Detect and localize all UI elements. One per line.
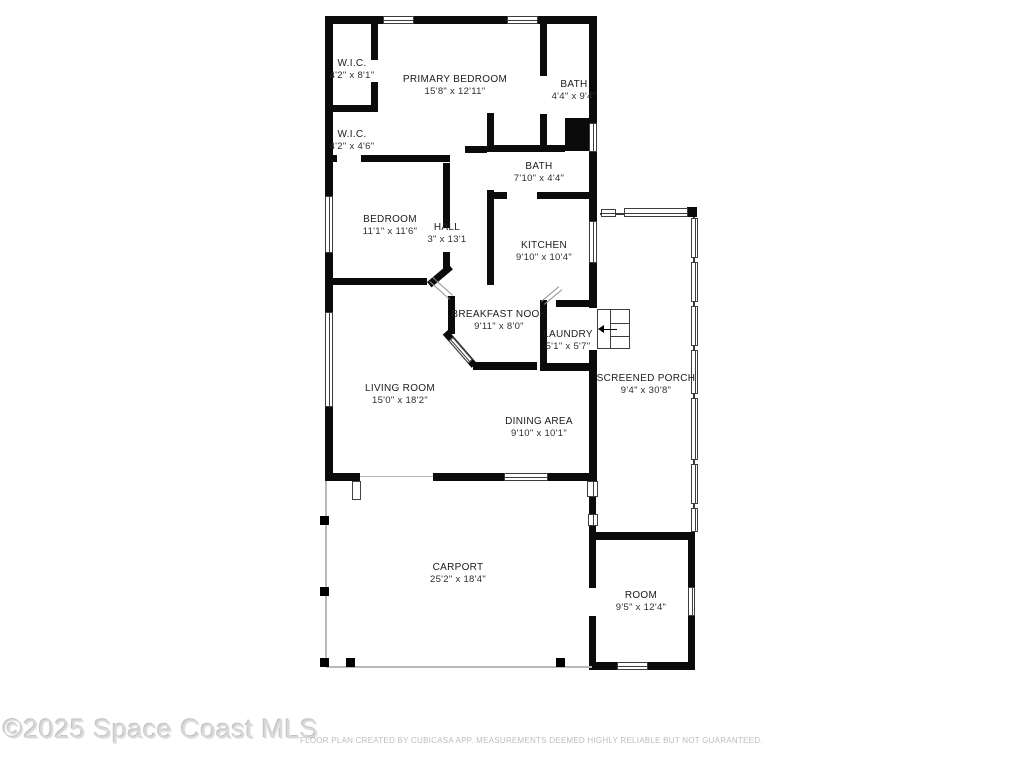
wall bbox=[371, 16, 378, 60]
wall bbox=[433, 473, 509, 481]
room-label-breakfast-nook: BREAKFAST NOOK 9'11" x 8'0" bbox=[451, 309, 546, 333]
steps-tread bbox=[610, 323, 629, 324]
wall bbox=[325, 473, 360, 481]
carport-post bbox=[556, 658, 565, 667]
room-label-dining-area: DINING AREA 9'10" x 10'1" bbox=[505, 416, 573, 440]
stairs-arrow-left-icon bbox=[598, 325, 604, 333]
wall bbox=[556, 300, 590, 307]
room-dims: 4'4" x 9'4" bbox=[552, 91, 597, 103]
steps-symbol bbox=[597, 309, 630, 349]
room-label-kitchen: KITCHEN 9'10" x 10'4" bbox=[516, 240, 572, 264]
room-dims: 25'2" x 18'4" bbox=[430, 574, 486, 586]
wall bbox=[540, 16, 547, 76]
window-symbol-bay bbox=[448, 337, 472, 364]
wall bbox=[465, 146, 487, 153]
room-name: PRIMARY BEDROOM bbox=[403, 74, 507, 86]
stairs-arrow-line bbox=[603, 329, 617, 330]
screen-window-symbol bbox=[691, 262, 698, 302]
room-name: BREAKFAST NOOK bbox=[451, 309, 546, 321]
room-dims: 9'10" x 10'1" bbox=[505, 428, 573, 440]
carport-boundary bbox=[326, 666, 592, 668]
room-dims: 9'5" x 12'4" bbox=[616, 602, 666, 614]
wall bbox=[325, 16, 597, 24]
room-dims: 4'2" x 8'1" bbox=[330, 70, 375, 82]
room-name: LAUNDRY bbox=[543, 329, 593, 341]
wall bbox=[473, 362, 537, 370]
steps-tread bbox=[610, 336, 629, 337]
window-symbol bbox=[589, 221, 597, 263]
room-dims: 4'2" x 4'6" bbox=[330, 141, 375, 153]
room-dims: 15'0" x 18'2" bbox=[365, 395, 435, 407]
wall bbox=[487, 190, 494, 285]
room-label-hall: HALL 3" x 13'1 bbox=[427, 222, 466, 246]
wall bbox=[325, 278, 427, 285]
wall bbox=[589, 532, 695, 540]
window-symbol bbox=[688, 587, 695, 616]
window-symbol bbox=[587, 481, 598, 497]
wall bbox=[537, 192, 590, 199]
window-symbol bbox=[601, 209, 616, 217]
screen-window-symbol bbox=[691, 508, 698, 532]
room-label-wic1: W.I.C. 4'2" x 8'1" bbox=[330, 58, 375, 82]
room-dims: 9'11" x 8'0" bbox=[451, 321, 546, 333]
wall bbox=[361, 155, 450, 162]
wall bbox=[589, 532, 596, 588]
room-dims: 11'1" x 11'6" bbox=[363, 226, 418, 238]
room-dims: 15'8" x 12'11" bbox=[403, 86, 507, 98]
room-name: CARPORT bbox=[430, 562, 486, 574]
room-name: W.I.C. bbox=[330, 129, 375, 141]
room-name: BATH bbox=[514, 161, 564, 173]
wall bbox=[325, 155, 337, 162]
room-label-bath1: BATH 4'4" x 9'4" bbox=[552, 79, 597, 103]
carport-post bbox=[320, 658, 329, 667]
window-symbol bbox=[588, 514, 598, 526]
screen-window-symbol bbox=[691, 218, 698, 258]
carport-post bbox=[320, 587, 329, 596]
window-symbol bbox=[383, 16, 414, 24]
room-name: DINING AREA bbox=[505, 416, 573, 428]
door-leaf bbox=[352, 481, 361, 500]
mls-watermark: ©2025 Space Coast MLS bbox=[3, 714, 319, 745]
room-label-wic2: W.I.C. 4'2" x 4'6" bbox=[330, 129, 375, 153]
room-label-bedroom: BEDROOM 11'1" x 11'6" bbox=[363, 214, 418, 238]
room-label-laundry: LAUNDRY 5'1" x 5'7" bbox=[543, 329, 593, 353]
room-name: HALL bbox=[427, 222, 466, 234]
room-name: BEDROOM bbox=[363, 214, 418, 226]
wall bbox=[546, 473, 597, 481]
room-label-bath2: BATH 7'10" x 4'4" bbox=[514, 161, 564, 185]
screen-window-symbol bbox=[691, 306, 698, 346]
window-symbol bbox=[325, 312, 333, 407]
room-label-primary-bedroom: PRIMARY BEDROOM 15'8" x 12'11" bbox=[403, 74, 507, 98]
wall bbox=[487, 145, 565, 152]
floor-plan-canvas: W.I.C. 4'2" x 8'1" PRIMARY BEDROOM 15'8"… bbox=[0, 0, 1024, 768]
window-symbol bbox=[504, 473, 548, 481]
room-dims: 3" x 13'1 bbox=[427, 234, 466, 246]
window-symbol bbox=[325, 196, 333, 253]
screen-window-symbol bbox=[691, 464, 698, 504]
carport-boundary bbox=[325, 481, 327, 667]
window-symbol bbox=[624, 208, 688, 217]
fixture-block bbox=[565, 118, 592, 151]
room-label-living-room: LIVING ROOM 15'0" x 18'2" bbox=[365, 383, 435, 407]
room-dims: 9'4" x 30'8" bbox=[597, 385, 696, 397]
room-name: SCREENED PORCH bbox=[597, 373, 696, 385]
window-symbol bbox=[507, 16, 538, 24]
room-name: BATH bbox=[552, 79, 597, 91]
room-dims: 5'1" x 5'7" bbox=[543, 341, 593, 353]
room-name: ROOM bbox=[616, 590, 666, 602]
window-symbol bbox=[617, 662, 648, 670]
carport-post bbox=[320, 516, 329, 525]
room-dims: 9'10" x 10'4" bbox=[516, 252, 572, 264]
cubicasa-disclaimer: FLOOR PLAN CREATED BY CUBICASA APP. MEAS… bbox=[300, 736, 763, 745]
screen-window-symbol bbox=[691, 398, 698, 460]
wall bbox=[494, 192, 507, 199]
wall bbox=[325, 105, 378, 112]
room-label-room: ROOM 9'5" x 12'4" bbox=[616, 590, 666, 614]
porch-corner-post bbox=[687, 207, 697, 217]
room-dims: 7'10" x 4'4" bbox=[514, 173, 564, 185]
room-name: LIVING ROOM bbox=[365, 383, 435, 395]
room-name: KITCHEN bbox=[516, 240, 572, 252]
window-symbol bbox=[589, 123, 597, 152]
wall bbox=[540, 363, 590, 371]
room-label-carport: CARPORT 25'2" x 18'4" bbox=[430, 562, 486, 586]
room-label-screened-porch: SCREENED PORCH 9'4" x 30'8" bbox=[597, 373, 696, 397]
carport-post bbox=[346, 658, 355, 667]
door-opening-line bbox=[360, 476, 433, 477]
wall bbox=[443, 163, 450, 228]
room-name: W.I.C. bbox=[330, 58, 375, 70]
